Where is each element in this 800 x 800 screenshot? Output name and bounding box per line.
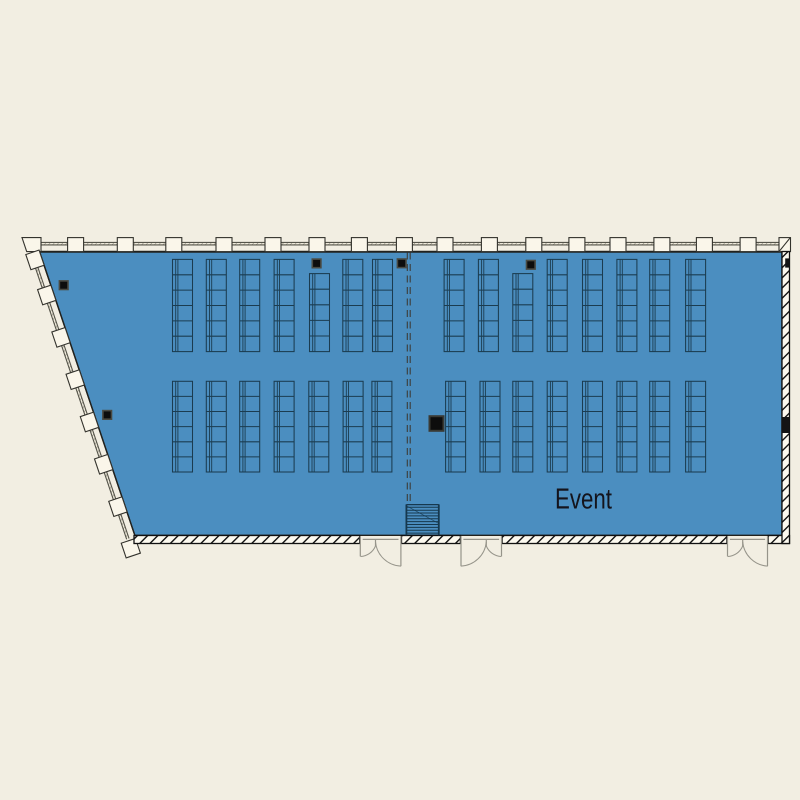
svg-text:Event: Event	[555, 484, 612, 516]
